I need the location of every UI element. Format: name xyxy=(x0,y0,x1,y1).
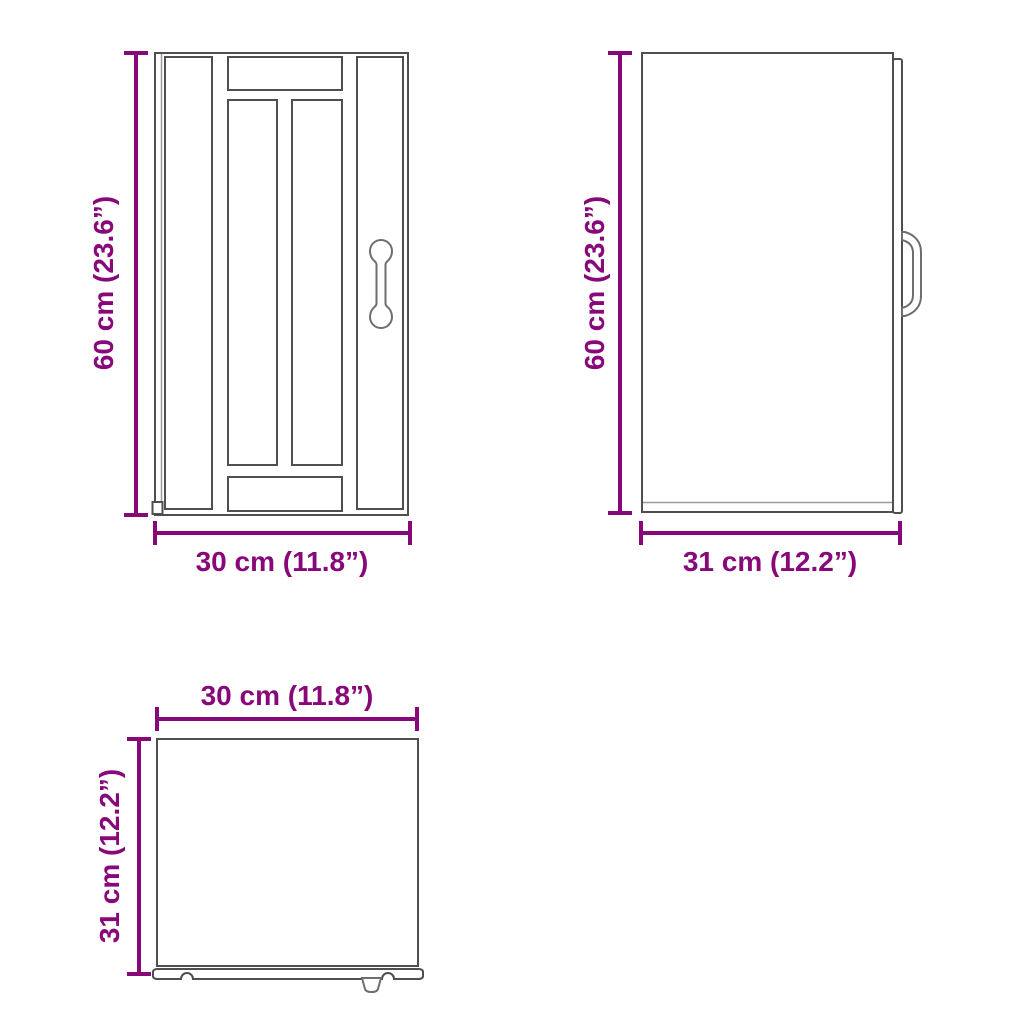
door-handle-side-icon xyxy=(902,232,921,316)
front-left-stile-panel xyxy=(165,57,212,509)
front-width-dimension xyxy=(155,521,410,545)
top-width-dimension-label: 30 cm (11.8”) xyxy=(201,682,374,710)
front-top-rail-panel xyxy=(228,57,342,90)
front-bottom-rail-panel xyxy=(228,477,342,511)
front-width-dimension-label: 30 cm (11.8”) xyxy=(196,548,369,576)
side-height-dimension-label: 60 cm (23.6”) xyxy=(581,196,609,370)
side-view-drawing xyxy=(642,53,921,513)
top-cabinet-outline xyxy=(157,739,418,966)
side-depth-dimension xyxy=(641,521,900,545)
side-height-dimension xyxy=(608,53,632,513)
front-height-dimension xyxy=(124,53,148,515)
front-view-drawing xyxy=(153,53,409,515)
top-depth-dimension-label: 31 cm (12.2”) xyxy=(96,769,124,943)
front-center-right-panel xyxy=(292,100,342,465)
front-hinge-foot xyxy=(153,502,163,514)
side-cabinet-outline xyxy=(642,53,893,512)
top-depth-dimension xyxy=(127,739,151,974)
front-height-dimension-label: 60 cm (23.6”) xyxy=(90,196,118,370)
side-depth-dimension-label: 31 cm (12.2”) xyxy=(683,548,857,576)
side-door-edge-strip xyxy=(893,59,902,513)
top-door-strip xyxy=(153,969,423,979)
dimension-diagram: 60 cm (23.6”) 30 cm (11.8”) 60 cm (23.6”… xyxy=(0,0,1024,1024)
door-handle-top-icon xyxy=(362,978,381,992)
diagram-linework xyxy=(0,0,1024,1024)
top-view-drawing xyxy=(153,739,423,992)
front-center-left-panel xyxy=(228,100,277,465)
